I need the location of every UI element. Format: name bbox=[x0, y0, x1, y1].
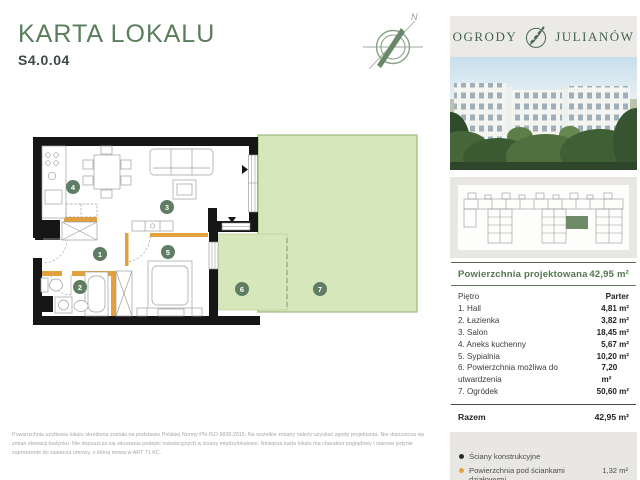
dining-table bbox=[83, 146, 131, 198]
info-panel: OGRODY JULIANÓW bbox=[450, 16, 637, 480]
bed bbox=[137, 261, 202, 316]
fine-print-line: zmian elewacji budynku. Nie dopuszcza si… bbox=[12, 440, 444, 449]
siteplan-schematic bbox=[458, 185, 629, 250]
room-badge-5: 5 bbox=[161, 245, 175, 259]
total-row: Razem 42,95 m² bbox=[451, 405, 636, 430]
leaf-emblem-icon bbox=[523, 24, 549, 50]
compass-north-label: N bbox=[411, 12, 418, 22]
room-badge-6: 6 bbox=[235, 282, 249, 296]
table-row-floor: Piętro Parter bbox=[458, 291, 629, 303]
table-row: 6. Powierzchnia możliwa do utwardzenia 7… bbox=[458, 362, 629, 386]
legend-dot-partitions bbox=[459, 468, 464, 473]
room-badge-3: 3 bbox=[160, 200, 174, 214]
direction-marker-east bbox=[242, 165, 248, 174]
table-row: 2. Łazienka 3,82 m² bbox=[458, 315, 629, 327]
room-badge-4: 4 bbox=[66, 180, 80, 194]
apartment-card: KARTA LOKALU S4.0.04 N bbox=[0, 0, 640, 480]
svg-text:6: 6 bbox=[240, 285, 244, 294]
table-row: 7. Ogródek 50,60 m² bbox=[458, 386, 629, 398]
room-badge-7: 7 bbox=[313, 282, 327, 296]
siteplan-band bbox=[450, 177, 637, 258]
table-row: 3. Salon 18,45 m² bbox=[458, 327, 629, 339]
summary-label: Powierzchnia projektowana bbox=[458, 269, 588, 280]
salon-window bbox=[249, 155, 258, 212]
kitchen-counter bbox=[42, 146, 66, 218]
unit-highlight bbox=[566, 216, 588, 229]
svg-text:7: 7 bbox=[318, 285, 322, 294]
brand-name-right: JULIANÓW bbox=[555, 29, 634, 45]
terrace-area bbox=[218, 234, 287, 310]
legend-dot-walls bbox=[459, 454, 464, 459]
bedroom-window bbox=[209, 242, 218, 269]
header: KARTA LOKALU S4.0.04 bbox=[18, 20, 215, 68]
toilet bbox=[41, 278, 63, 292]
table-row: 4. Aneks kuchenny 5,67 m² bbox=[458, 339, 629, 351]
legend-value: 1,32 m² bbox=[602, 466, 628, 475]
washing-machine bbox=[55, 297, 72, 313]
legend-item: Ściany konstrukcyjne bbox=[459, 452, 628, 461]
bedroom-wardrobe bbox=[116, 271, 132, 316]
coffee-table bbox=[173, 180, 196, 199]
unit-number: S4.0.04 bbox=[18, 52, 215, 68]
svg-text:1: 1 bbox=[98, 250, 102, 259]
svg-text:3: 3 bbox=[165, 203, 169, 212]
svg-text:2: 2 bbox=[78, 283, 82, 292]
fine-print-line: zaproszenie do zawarcia umowy, o której … bbox=[12, 449, 444, 458]
brand-name-left: OGRODY bbox=[453, 29, 518, 45]
sofa bbox=[150, 149, 213, 175]
svg-text:5: 5 bbox=[166, 248, 170, 257]
table-row: 1. Hall 4,81 m² bbox=[458, 303, 629, 315]
floor-plan: 1 2 3 4 5 6 7 bbox=[0, 95, 440, 345]
brand-logo: OGRODY JULIANÓW bbox=[450, 16, 637, 57]
summary-value: 42,95 m² bbox=[589, 269, 629, 280]
page-title: KARTA LOKALU bbox=[18, 20, 215, 49]
area-table: Powierzchnia projektowana 42,95 m² Piętr… bbox=[450, 262, 637, 430]
bathtub bbox=[85, 272, 108, 316]
hall-wardrobe bbox=[62, 222, 97, 240]
legend-item: Powierzchnia pod ściankami działowymi (n… bbox=[459, 466, 628, 480]
legal-fine-print: Powierzchnia użytkowa lokalu określona z… bbox=[12, 431, 444, 458]
summary-row: Powierzchnia projektowana 42,95 m² bbox=[451, 262, 636, 286]
development-photo bbox=[450, 57, 637, 170]
room-badge-1: 1 bbox=[93, 247, 107, 261]
table-row: 5. Sypialnia 10,20 m² bbox=[458, 351, 629, 363]
legend: Ściany konstrukcyjne Powierzchnia pod śc… bbox=[450, 432, 637, 480]
compass-icon: N bbox=[358, 6, 428, 76]
tv-cabinet bbox=[132, 221, 173, 231]
balcony-door bbox=[222, 223, 250, 230]
washbasin bbox=[74, 301, 88, 312]
room-badge-2: 2 bbox=[73, 280, 87, 294]
fine-print-line: Powierzchnia użytkowa lokalu określona z… bbox=[12, 431, 444, 440]
kitchen-cabinets bbox=[66, 204, 97, 217]
